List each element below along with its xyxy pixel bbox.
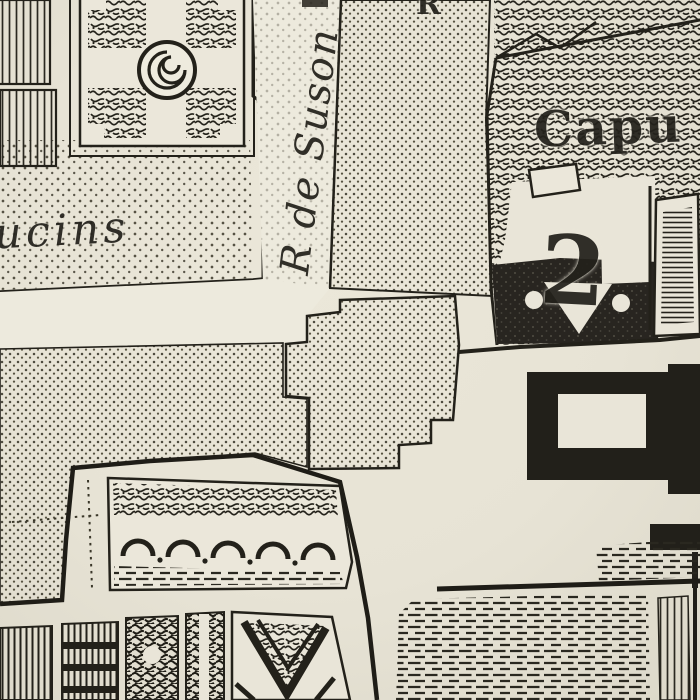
stippled-field-top [330,0,492,296]
hatched-building [0,0,50,84]
label-street-initial: R [416,0,441,22]
parterre-garden [70,0,254,156]
label-capucins-right: Capu [533,95,684,158]
field-strip-vertical [658,596,690,700]
small-building [529,164,580,197]
plot-striped [0,626,52,700]
central-city-block [286,296,459,469]
hatched-building [0,90,56,166]
label-capucins-left: ucins [0,202,131,259]
arched-parterre [108,478,352,590]
field-rows-main [396,593,650,700]
field-rows-upper [596,538,700,581]
dotted-path [88,480,92,588]
inner-courtyard [558,394,646,448]
street-edge-line [437,581,700,589]
engraved-map-canvas: ucins R de Suson Capu R 2 [0,0,700,700]
cultivated-field [396,538,700,700]
label-reference-numeral: 2 [538,222,609,320]
plot-chevron [232,612,350,700]
garden-plots [0,612,350,700]
